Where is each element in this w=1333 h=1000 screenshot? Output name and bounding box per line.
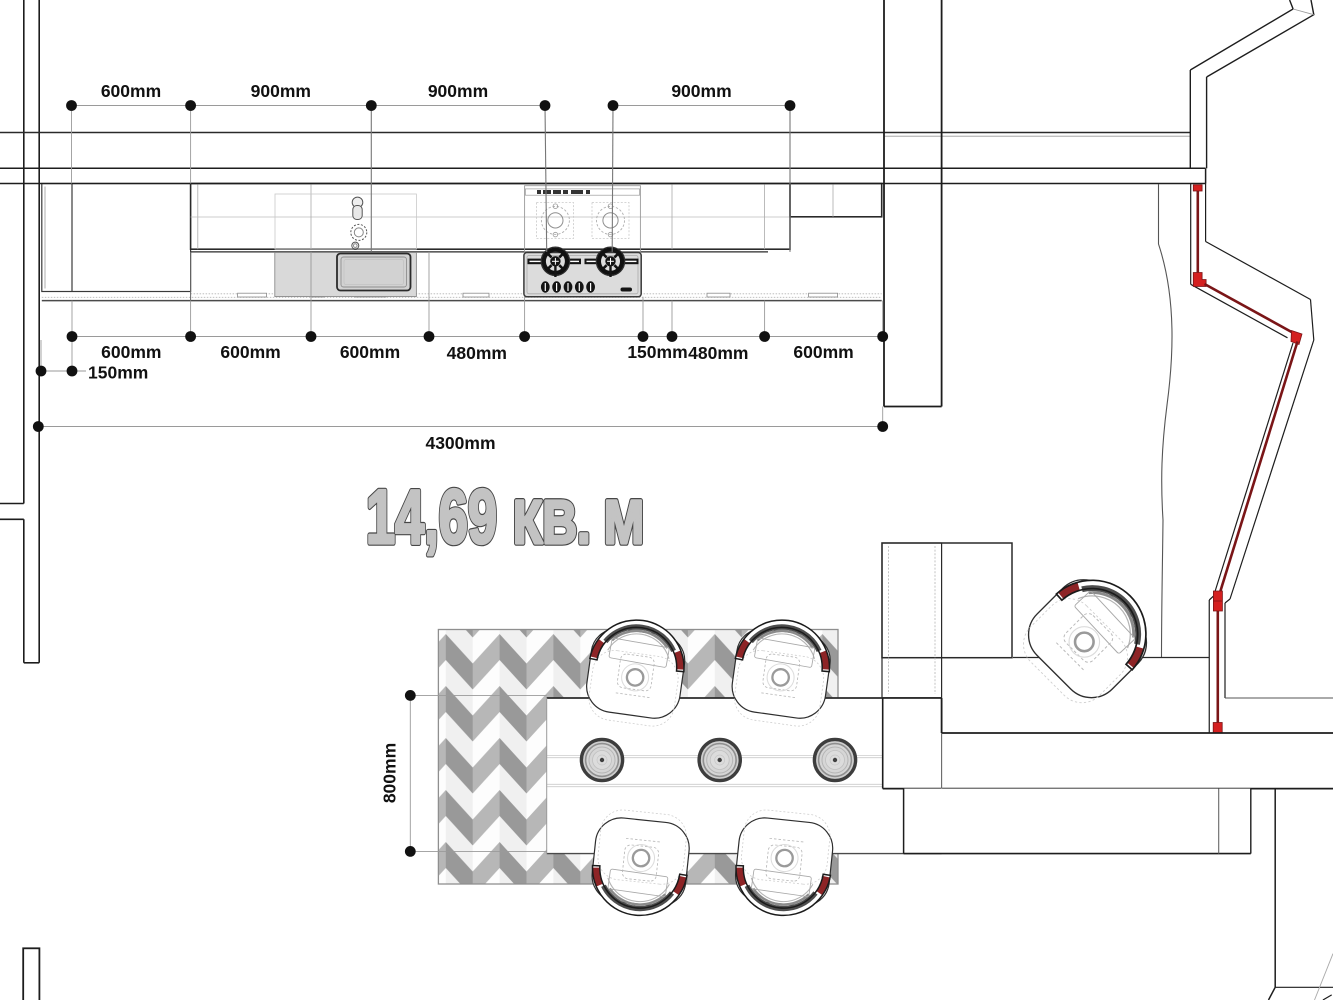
svg-text:480mm: 480mm <box>447 343 507 363</box>
svg-text:4300mm: 4300mm <box>425 433 495 453</box>
svg-text:600mm: 600mm <box>793 342 853 362</box>
svg-text:КВ. М: КВ. М <box>513 488 644 556</box>
svg-text:600mm: 600mm <box>220 342 280 362</box>
svg-text:480mm: 480mm <box>688 343 748 363</box>
svg-text:900mm: 900mm <box>251 81 311 101</box>
svg-text:150mm: 150mm <box>88 363 148 383</box>
svg-text:600mm: 600mm <box>101 342 161 362</box>
svg-text:150mm: 150mm <box>627 342 687 362</box>
svg-text:14,69: 14,69 <box>366 475 497 560</box>
svg-text:600mm: 600mm <box>340 342 400 362</box>
svg-text:900mm: 900mm <box>428 81 488 101</box>
svg-text:800mm: 800mm <box>380 743 400 803</box>
svg-text:600mm: 600mm <box>101 81 161 101</box>
svg-text:900mm: 900mm <box>671 81 731 101</box>
